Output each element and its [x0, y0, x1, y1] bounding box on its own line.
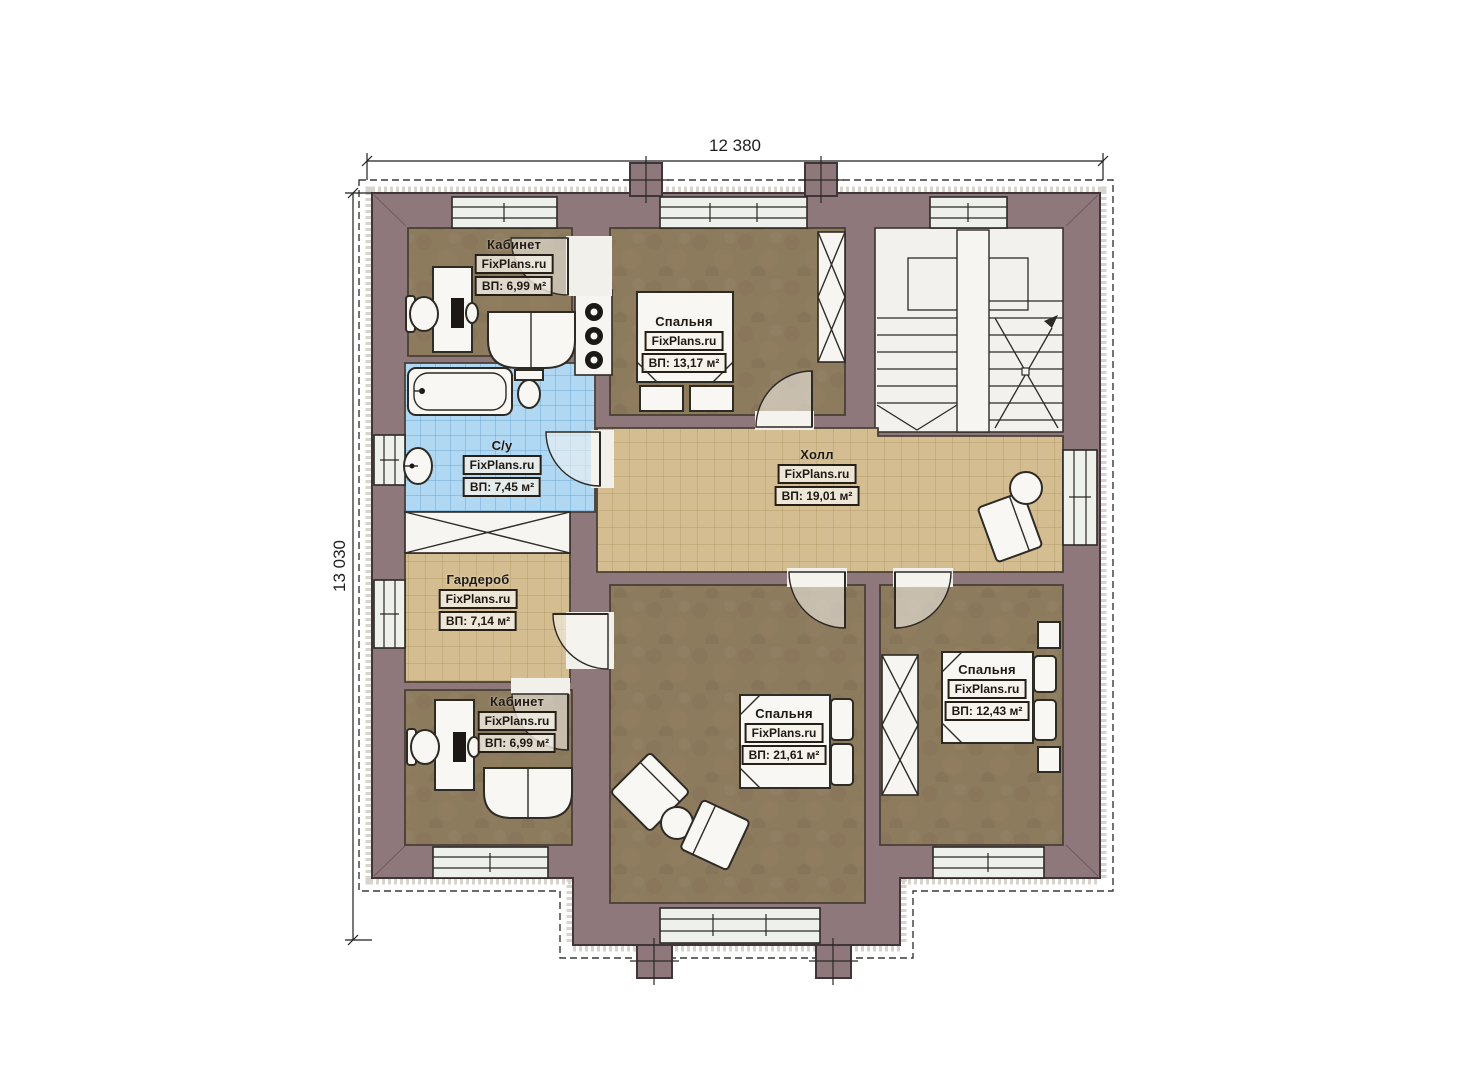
flue-block: [575, 290, 612, 375]
brand-watermark: FixPlans.ru: [948, 679, 1027, 699]
sofa-office-top: [488, 312, 575, 368]
floor-plan: 12 380 13 030 Кабинет FixPlans.ru ВП: 6,…: [0, 0, 1473, 1080]
desk-office-top: [433, 267, 478, 352]
window-top-office: [452, 197, 557, 228]
room-label-hall: Холл FixPlans.ru ВП: 19,01 м²: [775, 447, 860, 506]
brand-watermark: FixPlans.ru: [645, 331, 724, 351]
room-area: ВП: 19,01 м²: [775, 486, 860, 506]
room-name: Гардероб: [446, 572, 509, 587]
room-name: Холл: [800, 447, 833, 462]
brand-watermark: FixPlans.ru: [778, 464, 857, 484]
room-name: С/у: [492, 438, 513, 453]
office-chair-top: [406, 296, 438, 332]
window-left-wardrobe: [374, 580, 405, 648]
window-bottom-bedroom: [933, 847, 1044, 878]
closet-symbol: [405, 512, 570, 553]
room-area: ВП: 7,14 м²: [439, 611, 517, 631]
room-area: ВП: 21,61 м²: [742, 745, 827, 765]
sofa-office-bottom: [484, 768, 572, 818]
room-area: ВП: 6,99 м²: [478, 733, 556, 753]
room-area: ВП: 13,17 м²: [642, 353, 727, 373]
brand-watermark: FixPlans.ru: [478, 711, 557, 731]
dimension-width-label: 12 380: [709, 136, 761, 156]
room-name: Спальня: [655, 314, 713, 329]
dimension-height-label: 13 030: [330, 540, 350, 592]
window-right-hall: [1063, 450, 1097, 545]
toilet-icon: [515, 370, 543, 408]
dimension-line-top: [362, 153, 1108, 180]
office-chair-bottom: [407, 729, 439, 765]
window-left-bathroom: [374, 435, 405, 485]
room-name: Кабинет: [487, 237, 541, 252]
floor-plan-drawing: [0, 0, 1473, 1080]
brand-watermark: FixPlans.ru: [439, 589, 518, 609]
window-top-stairs: [930, 197, 1007, 228]
window-top-bedroom: [660, 197, 807, 228]
room-label-bedroom-middle: Спальня FixPlans.ru ВП: 21,61 м²: [742, 706, 827, 765]
room-label-wardrobe: Гардероб FixPlans.ru ВП: 7,14 м²: [439, 572, 518, 631]
desk-office-bottom: [435, 700, 480, 790]
brand-watermark: FixPlans.ru: [745, 723, 824, 743]
wardrobe-symbol-top: [818, 232, 845, 362]
room-area: ВП: 6,99 м²: [475, 276, 553, 296]
room-name: Кабинет: [490, 694, 544, 709]
room-label-office-bottom: Кабинет FixPlans.ru ВП: 6,99 м²: [478, 694, 557, 753]
room-label-bedroom-right: Спальня FixPlans.ru ВП: 12,43 м²: [945, 662, 1030, 721]
room-name: Спальня: [755, 706, 813, 721]
window-bottom-office: [433, 847, 548, 878]
side-table-hall: [1010, 472, 1042, 504]
wardrobe-symbol-right: [882, 655, 918, 795]
window-bay: [660, 908, 820, 943]
sink-icon: [404, 448, 432, 484]
brand-watermark: FixPlans.ru: [475, 254, 554, 274]
brand-watermark: FixPlans.ru: [463, 455, 542, 475]
room-label-bathroom: С/у FixPlans.ru ВП: 7,45 м²: [463, 438, 542, 497]
bathtub-icon: [408, 368, 512, 415]
room-area: ВП: 12,43 м²: [945, 701, 1030, 721]
room-label-bedroom-top: Спальня FixPlans.ru ВП: 13,17 м²: [642, 314, 727, 373]
room-name: Спальня: [958, 662, 1016, 677]
room-area: ВП: 7,45 м²: [463, 477, 541, 497]
room-label-office-top: Кабинет FixPlans.ru ВП: 6,99 м²: [475, 237, 554, 296]
